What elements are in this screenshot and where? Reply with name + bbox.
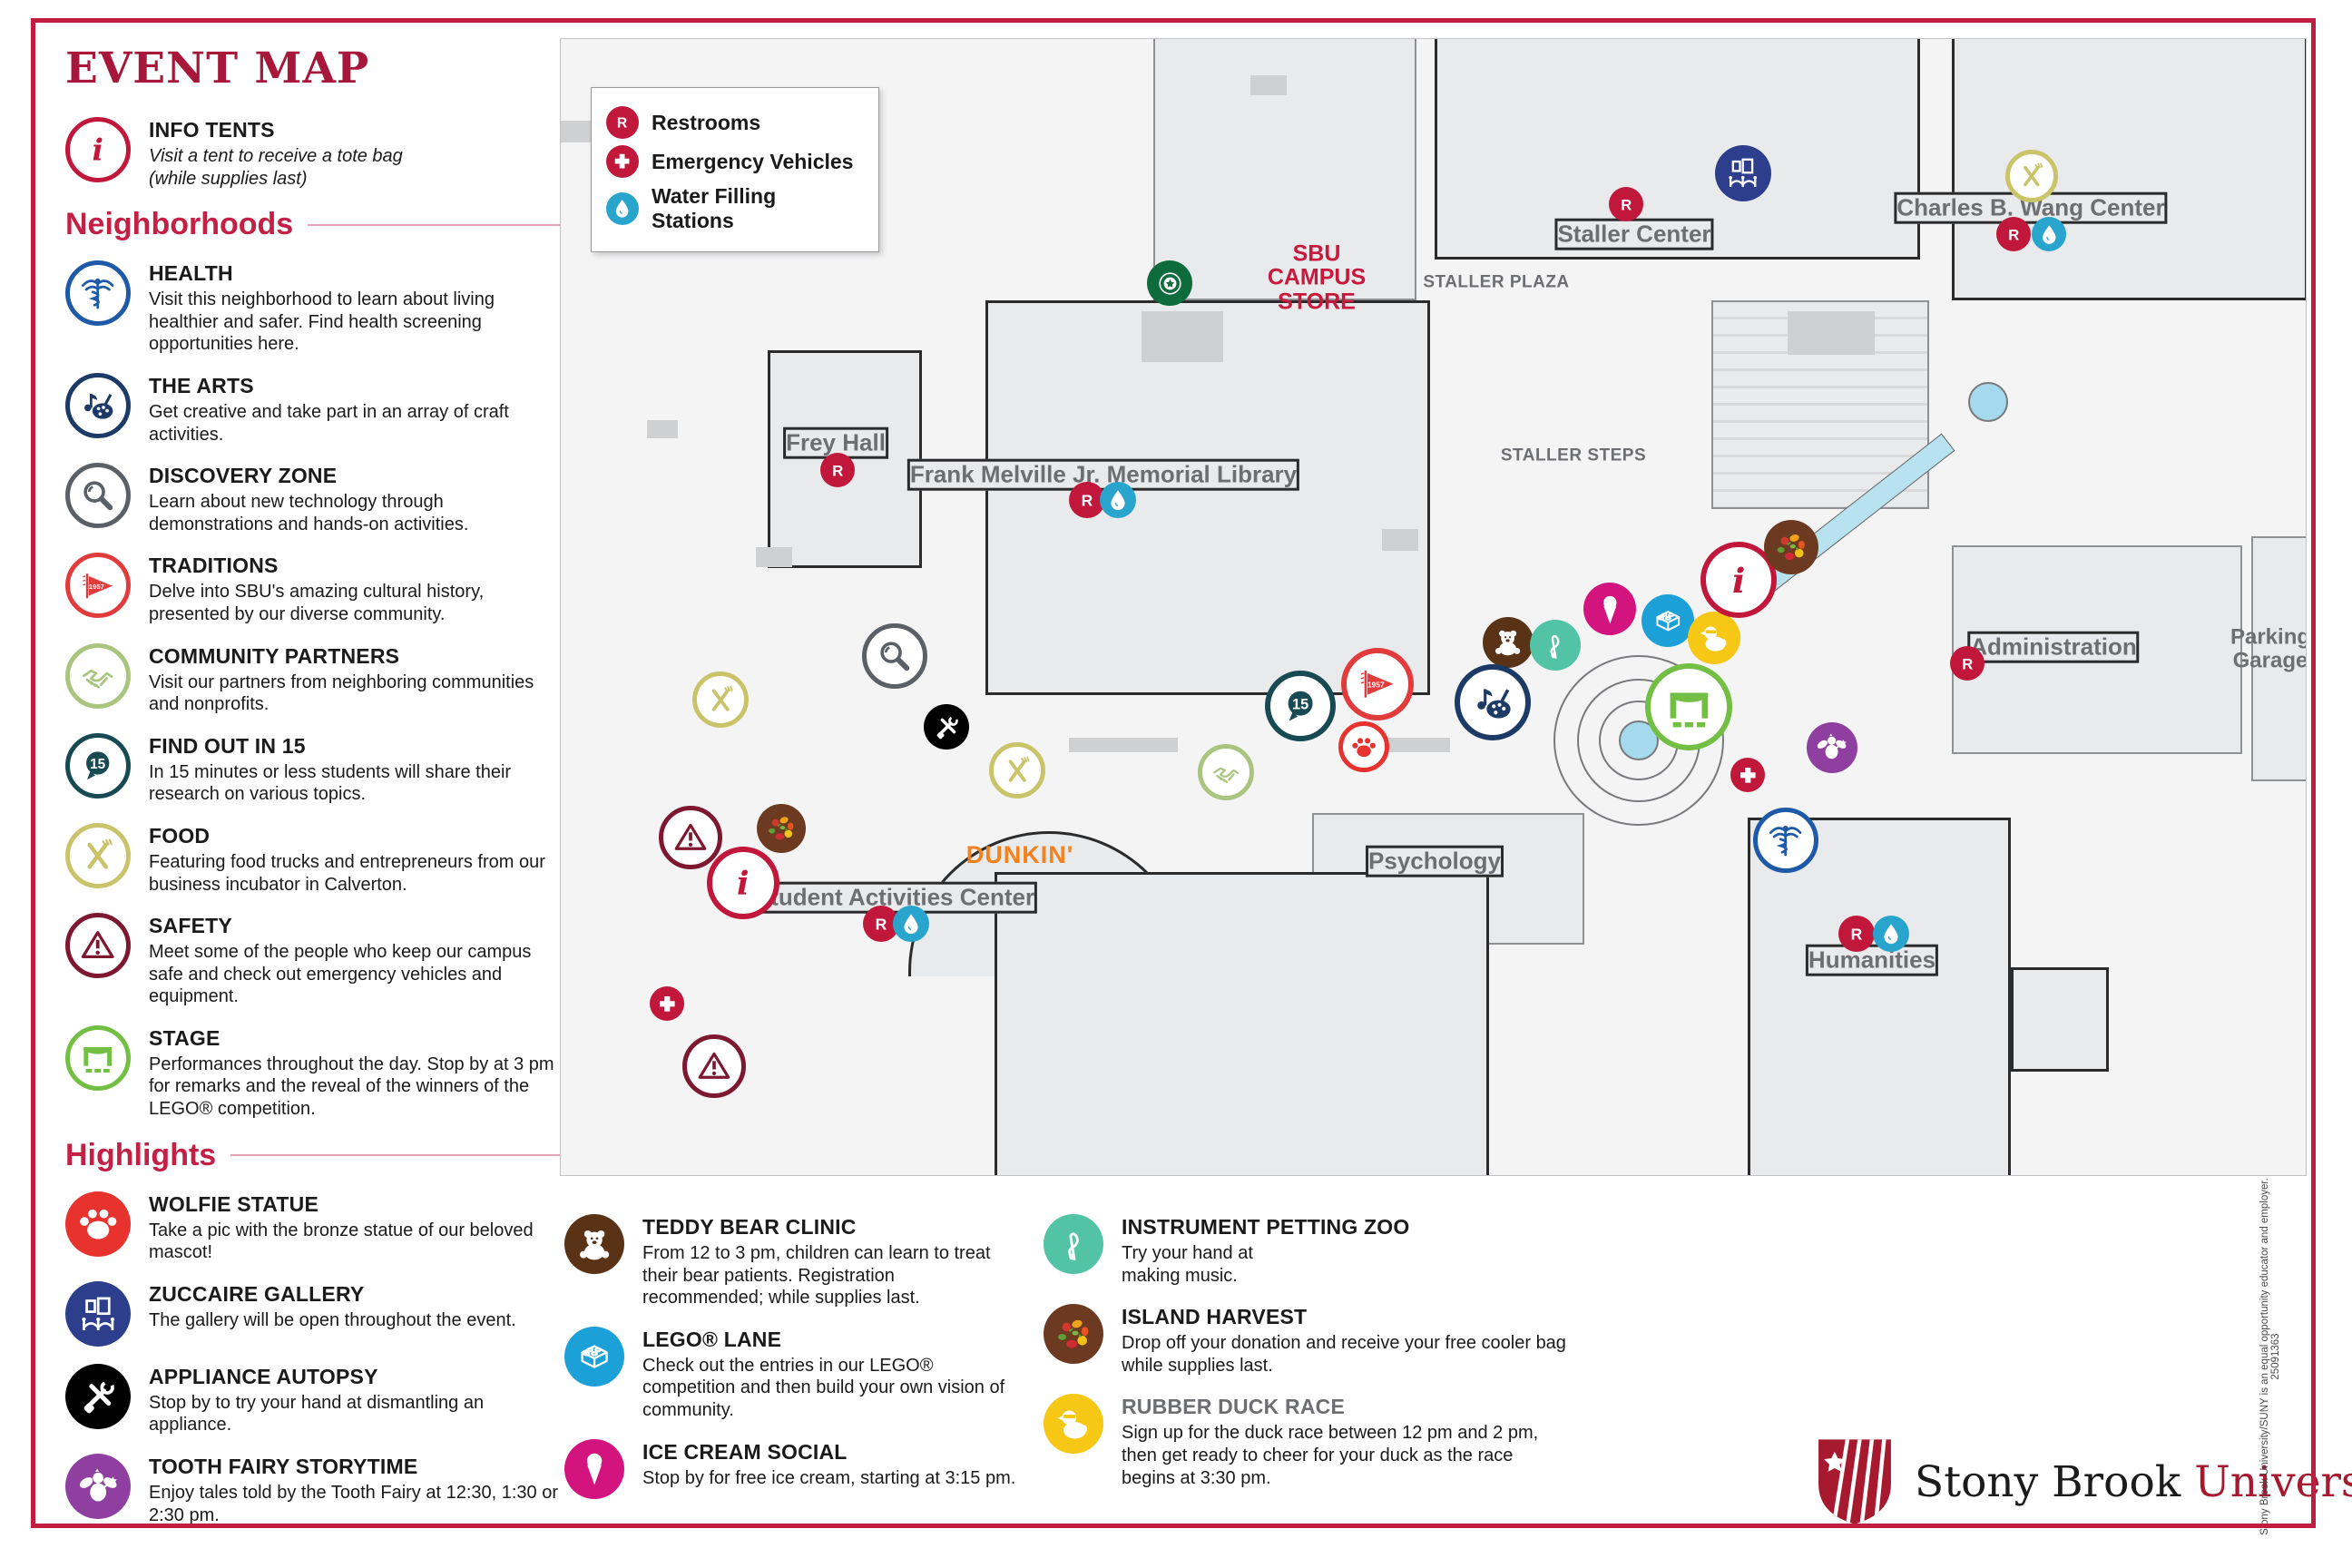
map-label-parking: Parking Garage [2230, 626, 2307, 674]
gallery-icon [75, 1291, 121, 1337]
entry-title: FIND OUT IN 15 [149, 734, 560, 759]
entry-title: TEDDY BEAR CLINIC [642, 1215, 1018, 1240]
wolfie-icon [75, 1200, 121, 1246]
food-icon [1001, 754, 1034, 787]
section-heading-label: Neighborhoods [65, 207, 293, 242]
map-marker-tools [924, 704, 969, 750]
entry-desc: Enjoy tales told by the Tooth Fairy at 1… [149, 1482, 560, 1526]
entry-text: STAGEPerformances throughout the day. St… [149, 1025, 560, 1121]
entry-title: INFO TENTS [149, 118, 560, 142]
gallery-badge [1715, 145, 1771, 201]
legend-label: Restrooms [652, 111, 760, 135]
water-badge [2032, 217, 2066, 251]
clef-badge [1530, 620, 1581, 671]
map-label-staller-center: Staller Center [1554, 219, 1713, 250]
map-marker-lego [1641, 594, 1694, 647]
map-deco [1382, 529, 1418, 551]
safety-badge [682, 1034, 746, 1098]
section-heading-neighborhoods: Neighborhoods [65, 207, 560, 242]
entry-desc: Try your hand at making music. [1122, 1242, 1570, 1287]
food-icon [78, 836, 117, 875]
map-marker-water [1873, 916, 1909, 952]
legend-row-emergency-vehicles: Emergency Vehicles [606, 145, 864, 178]
discovery-badge [862, 623, 927, 689]
highlights-item-wolfie-statue: WOLFIE STATUETake a pic with the bronze … [65, 1191, 560, 1264]
map-marker-info: i [707, 847, 779, 919]
svg-text:i: i [93, 132, 103, 168]
water-icon [898, 911, 924, 936]
map-marker-duck [1688, 612, 1740, 664]
traditions-badge: 1957 [65, 553, 131, 618]
gallery-icon [1723, 153, 1762, 192]
entry-text: WOLFIE STATUETake a pic with the bronze … [149, 1191, 560, 1264]
info-icon: i [78, 130, 117, 169]
map-marker-emergency [1730, 758, 1765, 792]
clef-icon [1053, 1223, 1094, 1265]
neighborhoods-item-the-arts: THE ARTSGet creative and take part in an… [65, 373, 560, 446]
starbucks-badge [1147, 260, 1192, 306]
water-badge [1873, 916, 1909, 952]
map-deco [1069, 738, 1178, 752]
highlight-lego-lane: LEGO® LANECheck out the entries in our L… [564, 1327, 1018, 1422]
map-marker-restroom: R [1609, 187, 1643, 221]
neighborhoods-item-health: HEALTHVisit this neighborhood to learn a… [65, 260, 560, 356]
fairy-badge [1807, 722, 1857, 773]
svg-text:1957: 1957 [89, 582, 104, 590]
entry-title: RUBBER DUCK RACE [1122, 1395, 1570, 1419]
legend-row-water-filling-stations: Water Filling Stations [606, 184, 864, 233]
lego-badge [1641, 594, 1694, 647]
bottom-column-1: TEDDY BEAR CLINICFrom 12 to 3 pm, childr… [564, 1214, 1018, 1516]
restroom-icon: R [868, 911, 894, 936]
svg-text:R: R [1851, 925, 1863, 943]
stage-badge [65, 1025, 131, 1091]
safety-icon [78, 926, 117, 965]
entry-text: HEALTHVisit this neighborhood to learn a… [149, 260, 560, 356]
lego-icon [1650, 603, 1687, 640]
neighborhoods-item-traditions: 1957TRADITIONSDelve into SBU's amazing c… [65, 553, 560, 625]
fine-print: Stony Brook University/SUNY is an equal … [2259, 1157, 2274, 1556]
map-marker-discovery [862, 623, 927, 689]
tools-icon [931, 711, 963, 743]
wang-pond [1968, 382, 2008, 422]
emergency-badge [650, 986, 684, 1021]
map-deco [756, 547, 792, 567]
harvest-icon [764, 811, 799, 846]
svg-text:1957: 1957 [1367, 680, 1385, 689]
map-marker-clef [1530, 620, 1581, 671]
restroom-badge: R [820, 453, 855, 487]
entry-title: HEALTH [149, 261, 560, 286]
map-marker-food [989, 742, 1045, 799]
emergency-icon [1736, 763, 1760, 788]
food-icon [2016, 161, 2047, 191]
stage-badge [1645, 663, 1732, 750]
icecream-icon [573, 1447, 615, 1489]
discovery-icon [78, 475, 117, 514]
map-marker-traditions: 1957 [1341, 648, 1414, 720]
teddy-icon [573, 1223, 615, 1265]
find15-badge: 15 [1265, 671, 1336, 741]
entry-desc: Sign up for the duck race between 12 pm … [1122, 1422, 1570, 1489]
map-label-psychology: Psychology [1366, 846, 1504, 877]
food-badge [989, 742, 1045, 799]
entry-title: FOOD [149, 824, 560, 848]
community-badge [65, 643, 131, 709]
entry-desc: Performances throughout the day. Stop by… [149, 1053, 560, 1121]
teddy-badge [564, 1214, 624, 1274]
water-icon [2037, 222, 2062, 247]
map-deco [1250, 75, 1287, 95]
stage-icon [78, 1038, 117, 1077]
map-marker-harvest [1764, 520, 1818, 574]
health-icon [78, 273, 117, 312]
fairy-icon [75, 1464, 121, 1509]
sidebar: EVENT MAP iINFO TENTSVisit a tent to rec… [65, 44, 560, 1543]
lego-icon [573, 1336, 615, 1377]
entry-desc: Visit a tent to receive a tote bag (whil… [149, 145, 560, 190]
info-tents-entry: iINFO TENTSVisit a tent to receive a tot… [65, 117, 560, 190]
highlight-instrument-petting-zoo: INSTRUMENT PETTING ZOOTry your hand at m… [1044, 1214, 1570, 1287]
community-icon [1210, 756, 1242, 789]
food-badge [65, 823, 131, 888]
entry-title: WOLFIE STATUE [149, 1192, 560, 1217]
restroom-icon: R [611, 111, 633, 133]
map-legend: RRestroomsEmergency VehiclesWater Fillin… [591, 87, 879, 252]
map-deco [1142, 311, 1223, 362]
harvest-icon [1772, 528, 1810, 566]
health-icon [1766, 820, 1805, 859]
traditions-icon: 1957 [1356, 662, 1399, 706]
map-marker-restroom: R [1996, 217, 2031, 251]
highlights-item-tooth-fairy-storytime: TOOTH FAIRY STORYTIMEEnjoy tales told by… [65, 1454, 560, 1526]
map-marker-fairy [1807, 722, 1857, 773]
bottom-column-2: INSTRUMENT PETTING ZOOTry your hand at m… [1044, 1214, 1570, 1506]
svg-text:i: i [737, 865, 750, 903]
entry-desc: Delve into SBU's amazing cultural histor… [149, 581, 560, 625]
campus-map: RRestroomsEmergency VehiclesWater Fillin… [560, 38, 2307, 1176]
svg-text:R: R [832, 462, 843, 479]
info-icon: i [1716, 557, 1761, 603]
arts-badge [65, 373, 131, 438]
entry-title: SAFETY [149, 914, 560, 938]
wolfie-badge [65, 1191, 131, 1257]
tools-badge [924, 704, 969, 750]
emergency-badge [1730, 758, 1765, 792]
map-marker-emergency [650, 986, 684, 1021]
fairy-icon [1814, 730, 1849, 765]
traditions-icon: 1957 [78, 566, 117, 605]
map-marker-community [1198, 744, 1254, 800]
harvest-badge [1044, 1304, 1103, 1364]
safety-badge [65, 913, 131, 978]
entry-title: ZUCCAIRE GALLERY [149, 1282, 560, 1307]
harvest-badge [1764, 520, 1818, 574]
svg-text:R: R [876, 915, 887, 933]
section-heading-highlights: Highlights [65, 1138, 560, 1173]
sidebar-sections: NeighborhoodsHEALTHVisit this neighborho… [65, 207, 560, 1526]
map-label-administration: Administration [1967, 632, 2139, 663]
info-icon: i [721, 861, 765, 905]
entry-title: INSTRUMENT PETTING ZOO [1122, 1215, 1570, 1240]
section-heading-label: Highlights [65, 1138, 216, 1173]
restroom-icon: R [1955, 652, 1980, 676]
svg-text:R: R [617, 116, 628, 132]
info-badge: i [707, 847, 779, 919]
map-label-sbu: SBU CAMPUS STORE [1268, 242, 1366, 314]
map-marker-icecream [1583, 583, 1636, 635]
wolfie-icon [1349, 732, 1378, 761]
water-icon [611, 197, 633, 220]
restroom-icon: R [2002, 222, 2026, 247]
entry-text: INSTRUMENT PETTING ZOOTry your hand at m… [1122, 1214, 1570, 1287]
entry-text: FOODFeaturing food trucks and entreprene… [149, 823, 560, 896]
duck-icon [1696, 620, 1733, 657]
neighborhoods-item-discovery-zone: DISCOVERY ZONELearn about new technology… [65, 463, 560, 535]
neighborhoods-item-safety: SAFETYMeet some of the people who keep o… [65, 913, 560, 1008]
map-marker-gallery [1715, 145, 1771, 201]
svg-text:15: 15 [1292, 696, 1308, 712]
entry-desc: Check out the entries in our LEGO® compe… [642, 1355, 1018, 1422]
entry-title: DISCOVERY ZONE [149, 464, 560, 488]
entry-title: APPLIANCE AUTOPSY [149, 1365, 560, 1389]
map-label-staller-steps: STALLER STEPS [1501, 447, 1646, 466]
entry-title: TOOTH FAIRY STORYTIME [149, 1455, 560, 1479]
water-icon [1105, 487, 1131, 513]
entry-text: TEDDY BEAR CLINICFrom 12 to 3 pm, childr… [642, 1214, 1018, 1309]
logo-text-black: Stony Brook [1915, 1457, 2180, 1507]
info-badge: i [65, 117, 131, 182]
starbucks-icon [1154, 268, 1186, 299]
map-marker-arts [1455, 664, 1531, 740]
restroom-icon: R [826, 458, 850, 483]
page-title: EVENT MAP [65, 44, 560, 93]
entry-title: ICE CREAM SOCIAL [642, 1440, 1018, 1465]
entry-title: COMMUNITY PARTNERS [149, 644, 560, 669]
entry-text: FIND OUT IN 15In 15 minutes or less stud… [149, 733, 560, 806]
legend-row-restrooms: RRestrooms [606, 106, 864, 139]
entry-title: TRADITIONS [149, 554, 560, 578]
map-label-dunkin: DUNKIN' [966, 842, 1073, 869]
safety-icon [695, 1047, 733, 1085]
duck-badge [1688, 612, 1740, 664]
entry-desc: From 12 to 3 pm, children can learn to t… [642, 1242, 1018, 1309]
map-marker-restroom: R [820, 453, 855, 487]
entry-desc: In 15 minutes or less students will shar… [149, 761, 560, 806]
icecream-icon [1592, 591, 1629, 628]
entry-desc: Take a pic with the bronze statue of our… [149, 1220, 560, 1264]
entry-text: RUBBER DUCK RACESign up for the duck rac… [1122, 1394, 1570, 1489]
entry-desc: Learn about new technology through demon… [149, 491, 560, 535]
entry-text: DISCOVERY ZONELearn about new technology… [149, 463, 560, 535]
entry-title: STAGE [149, 1026, 560, 1051]
map-marker-food [2005, 150, 2058, 202]
wolfie-badge [1338, 721, 1389, 772]
find15-icon: 15 [78, 746, 117, 785]
entry-text: THE ARTSGet creative and take part in an… [149, 373, 560, 446]
map-marker-restroom: R [1838, 916, 1875, 952]
neighborhoods-item-find-out-in-15: 15FIND OUT IN 15In 15 minutes or less st… [65, 733, 560, 806]
restroom-icon: R [1614, 192, 1639, 217]
clef-badge [1044, 1214, 1103, 1274]
map-marker-restroom: R [1950, 646, 1984, 681]
restroom-badge: R [1996, 217, 2031, 251]
entry-text: LEGO® LANECheck out the entries in our L… [642, 1327, 1018, 1422]
entry-text: COMMUNITY PARTNERSVisit our partners fro… [149, 643, 560, 716]
restroom-icon: R [1844, 921, 1869, 946]
teddy-icon [1490, 624, 1525, 660]
entry-desc: Drop off your donation and receive your … [1122, 1332, 1570, 1377]
arts-icon [78, 386, 117, 425]
map-deco [1788, 311, 1875, 355]
entry-desc: Get creative and take part in an array o… [149, 401, 560, 446]
logo-wordmark: Stony Brook University [1915, 1457, 2352, 1507]
find15-icon: 15 [1279, 685, 1321, 727]
health-badge [1753, 808, 1818, 873]
water-icon [1878, 921, 1904, 946]
svg-text:R: R [2008, 226, 2019, 243]
icecream-badge [564, 1439, 624, 1499]
harvest-icon [1053, 1313, 1094, 1355]
entry-desc: Visit our partners from neighboring comm… [149, 671, 560, 716]
restroom-badge: R [606, 106, 639, 139]
map-marker-harvest [757, 804, 806, 853]
building-student-activities-center [995, 872, 1489, 1176]
map-marker-find15: 15 [1265, 671, 1336, 741]
highlights-item-zuccaire-gallery: ZUCCAIRE GALLERYThe gallery will be open… [65, 1281, 560, 1347]
highlight-ice-cream-social: ICE CREAM SOCIALStop by for free ice cre… [564, 1439, 1018, 1499]
building-humanities-wing [2011, 967, 2109, 1072]
entry-desc: The gallery will be open throughout the … [149, 1309, 560, 1332]
neighborhoods-item-food: FOODFeaturing food trucks and entreprene… [65, 823, 560, 896]
entry-text: ISLAND HARVESTDrop off your donation and… [1122, 1304, 1570, 1377]
safety-icon [671, 818, 710, 857]
map-marker-health [1753, 808, 1818, 873]
highlight-rubber-duck-race: RUBBER DUCK RACESign up for the duck rac… [1044, 1394, 1570, 1489]
restroom-badge: R [1950, 646, 1984, 681]
map-marker-stage [1645, 663, 1732, 750]
tools-icon [75, 1374, 121, 1419]
neighborhoods-item-community-partners: COMMUNITY PARTNERSVisit our partners fro… [65, 643, 560, 716]
emergency-icon [655, 992, 680, 1016]
map-marker-teddy [1483, 617, 1534, 668]
entry-text: TRADITIONSDelve into SBU's amazing cultu… [149, 553, 560, 625]
map-marker-wolfie [1338, 721, 1389, 772]
discovery-badge [65, 463, 131, 528]
svg-text:R: R [1082, 491, 1093, 509]
icecream-badge [1583, 583, 1636, 635]
duck-badge [1044, 1394, 1103, 1454]
health-badge [65, 260, 131, 326]
community-badge [1198, 744, 1254, 800]
entry-desc: Stop by for free ice cream, starting at … [642, 1467, 1018, 1490]
entry-desc: Stop by to try your hand at dismantling … [149, 1392, 560, 1436]
sidebar-item-info-tents: iINFO TENTSVisit a tent to receive a tot… [65, 117, 560, 190]
map-marker-safety [682, 1034, 746, 1098]
restroom-icon: R [1074, 487, 1100, 513]
food-badge [2005, 150, 2058, 202]
restroom-badge: R [1838, 916, 1875, 952]
map-label-staller-plaza: STALLER PLAZA [1423, 274, 1569, 293]
arts-badge [1455, 664, 1531, 740]
harvest-badge [757, 804, 806, 853]
clef-icon [1537, 627, 1573, 662]
entry-text: ZUCCAIRE GALLERYThe gallery will be open… [149, 1281, 560, 1332]
entry-desc: Visit this neighborhood to learn about l… [149, 289, 560, 356]
entry-text: ICE CREAM SOCIALStop by for free ice cre… [642, 1439, 1018, 1490]
svg-text:R: R [1621, 196, 1632, 213]
entry-text: TOOTH FAIRY STORYTIMEEnjoy tales told by… [149, 1454, 560, 1526]
emergency-icon [611, 150, 633, 172]
find15-badge: 15 [65, 733, 131, 799]
legend-label: Emergency Vehicles [652, 150, 853, 174]
sbu-shield-icon [1813, 1436, 1896, 1528]
tools-badge [65, 1364, 131, 1429]
svg-text:15: 15 [90, 757, 106, 772]
duck-icon [1053, 1403, 1094, 1445]
map-marker-water [2032, 217, 2066, 251]
stage-icon [1662, 681, 1716, 734]
neighborhoods-item-stage: STAGEPerformances throughout the day. St… [65, 1025, 560, 1121]
svg-text:R: R [1962, 655, 1973, 672]
emergency-badge [606, 145, 639, 178]
svg-text:i: i [1732, 561, 1745, 601]
food-badge [692, 671, 749, 728]
water-badge [606, 192, 639, 225]
map-deco [647, 420, 678, 438]
highlight-island-harvest: ISLAND HARVESTDrop off your donation and… [1044, 1304, 1570, 1377]
entry-title: THE ARTS [149, 374, 560, 398]
entry-title: LEGO® LANE [642, 1328, 1018, 1352]
entry-text: SAFETYMeet some of the people who keep o… [149, 913, 560, 1008]
map-marker-food [692, 671, 749, 728]
highlights-item-appliance-autopsy: APPLIANCE AUTOPSYStop by to try your han… [65, 1364, 560, 1436]
community-icon [78, 656, 117, 695]
entry-desc: Meet some of the people who keep our cam… [149, 941, 560, 1008]
traditions-badge: 1957 [1341, 648, 1414, 720]
discovery-icon [875, 636, 914, 675]
fairy-badge [65, 1454, 131, 1519]
arts-icon [1470, 680, 1515, 725]
entry-desc: Featuring food trucks and entrepreneurs … [149, 851, 560, 896]
lego-badge [564, 1327, 624, 1387]
map-marker-starbucks [1147, 260, 1192, 306]
teddy-badge [1483, 617, 1534, 668]
food-icon [704, 683, 737, 716]
entry-text: INFO TENTSVisit a tent to receive a tote… [149, 117, 560, 190]
entry-text: APPLIANCE AUTOPSYStop by to try your han… [149, 1364, 560, 1436]
restroom-badge: R [1609, 187, 1643, 221]
map-marker-water [893, 906, 929, 942]
water-badge [893, 906, 929, 942]
map-marker-water [1100, 482, 1136, 518]
water-badge [1100, 482, 1136, 518]
entry-title: ISLAND HARVEST [1122, 1305, 1570, 1329]
legend-label: Water Filling Stations [652, 184, 864, 233]
highlight-teddy-bear-clinic: TEDDY BEAR CLINICFrom 12 to 3 pm, childr… [564, 1214, 1018, 1309]
gallery-badge [65, 1281, 131, 1347]
